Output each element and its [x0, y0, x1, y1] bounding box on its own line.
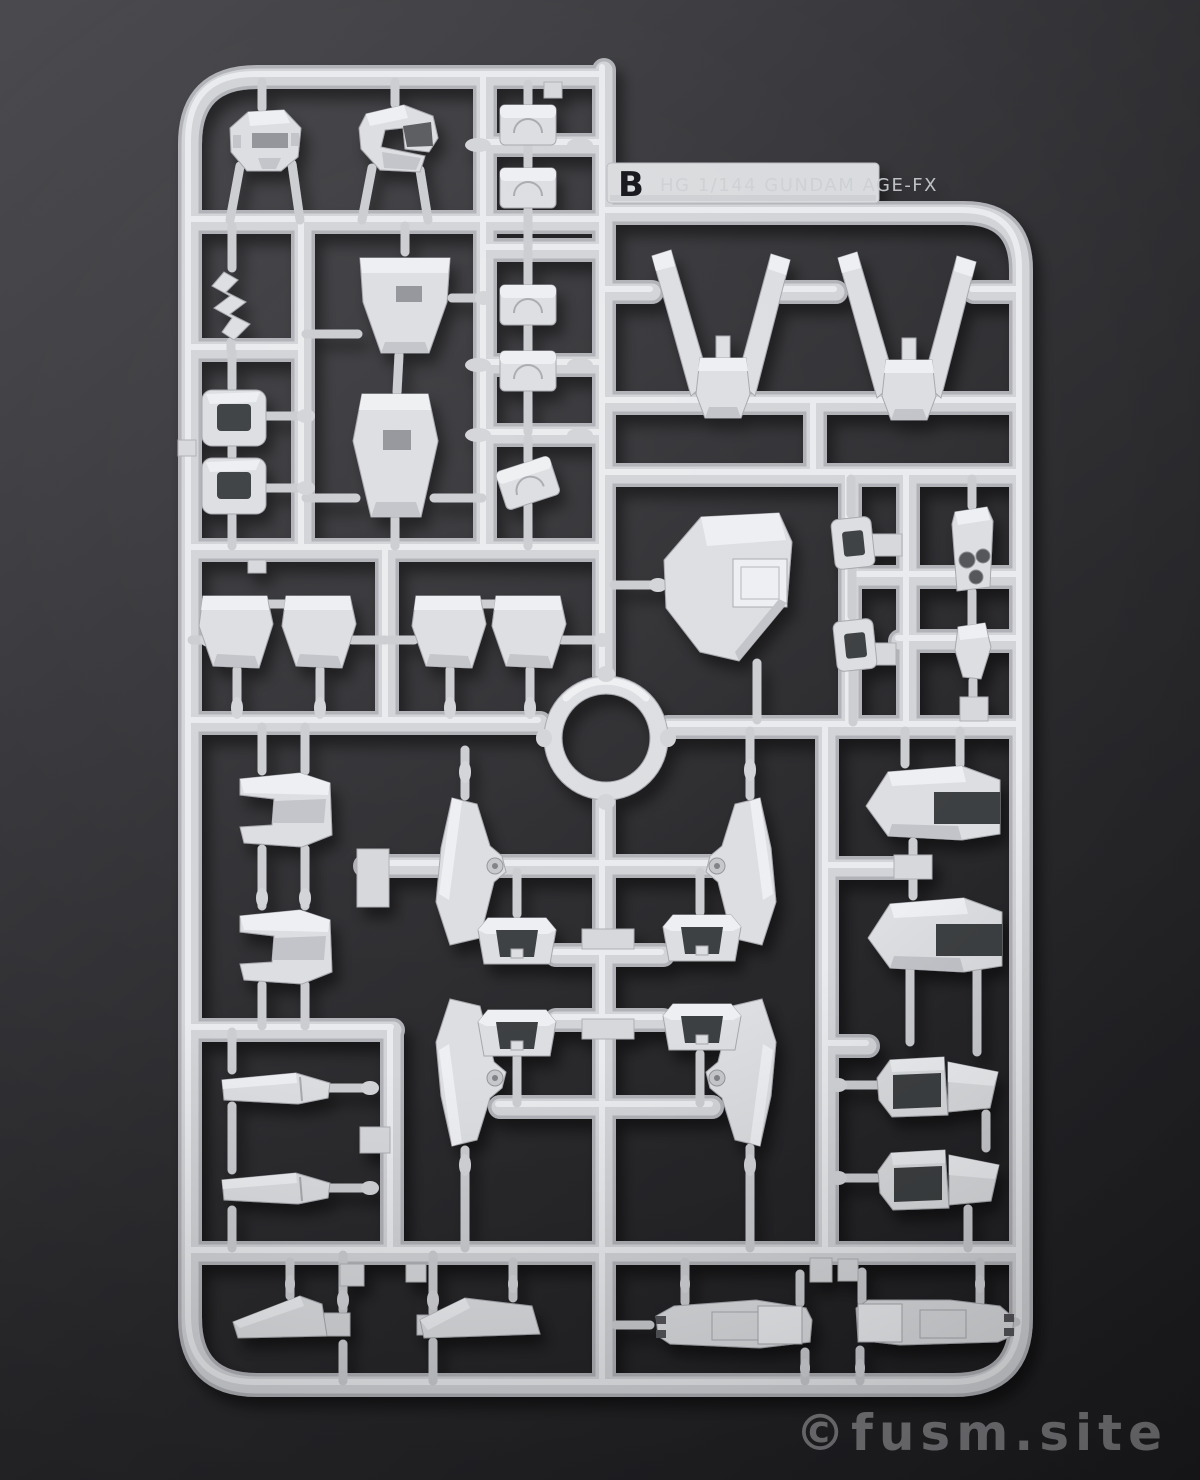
part-square-frame-1	[830, 516, 875, 570]
part-joint-cover-1	[500, 105, 556, 145]
part-shield-nose	[664, 513, 792, 661]
part-shoulder-armor-2	[282, 596, 356, 668]
part-thruster-pod-1	[877, 1057, 998, 1117]
part-joint-cover-5	[495, 455, 561, 510]
part-binder-pod-2	[868, 898, 1002, 972]
part-knee-bracket-3	[478, 1010, 556, 1056]
runner-sprue: B HG 1/144 GUNDAM AGE-FX	[178, 67, 1021, 1385]
part-grip-bar-1	[222, 1073, 330, 1104]
part-joint-cover-3	[500, 285, 556, 325]
runner-letter: B	[618, 165, 644, 205]
part-chest-armor	[360, 258, 450, 353]
part-grip-bar-2	[222, 1173, 330, 1204]
part-small-wedge	[955, 623, 991, 679]
part-head-helmet	[230, 110, 301, 171]
part-knee-bracket-4	[663, 1004, 741, 1050]
part-head-rear	[359, 105, 438, 172]
part-vernier-block	[952, 507, 993, 591]
watermark: ©fusm.site	[795, 1404, 1168, 1462]
part-binder-pod-1	[866, 766, 1000, 840]
part-shoulder-armor-4	[492, 596, 566, 668]
part-shoulder-armor-3	[412, 596, 486, 668]
runner-photo: B HG 1/144 GUNDAM AGE-FX ©fusm.site	[0, 0, 1200, 1480]
part-joint-cover-4	[500, 351, 556, 391]
part-torso-armor	[353, 394, 438, 517]
photo-canvas: B HG 1/144 GUNDAM AGE-FX ©fusm.site	[0, 0, 1200, 1480]
part-waist-frame-1	[202, 390, 266, 446]
part-shoulder-armor-1	[199, 596, 273, 668]
part-antenna	[212, 272, 250, 340]
part-knee-bracket-2	[663, 915, 741, 961]
part-forearm-clamp-2	[240, 910, 332, 984]
runner-embossed-text: HG 1/144 GUNDAM AGE-FX	[660, 175, 938, 196]
part-forearm-clamp-1	[240, 773, 332, 847]
part-ring	[536, 666, 676, 810]
part-forearm-shell-1	[656, 1300, 812, 1348]
part-square-frame-2	[832, 618, 877, 672]
part-joint-cover-2	[500, 168, 556, 208]
part-foot-wedge-1	[233, 1296, 327, 1338]
part-knee-bracket-1	[478, 918, 556, 964]
runner-tab: B HG 1/144 GUNDAM AGE-FX	[607, 163, 938, 205]
part-thruster-pod-2	[878, 1150, 999, 1210]
part-waist-frame-2	[202, 458, 266, 514]
part-forearm-shell-2	[856, 1300, 1014, 1345]
